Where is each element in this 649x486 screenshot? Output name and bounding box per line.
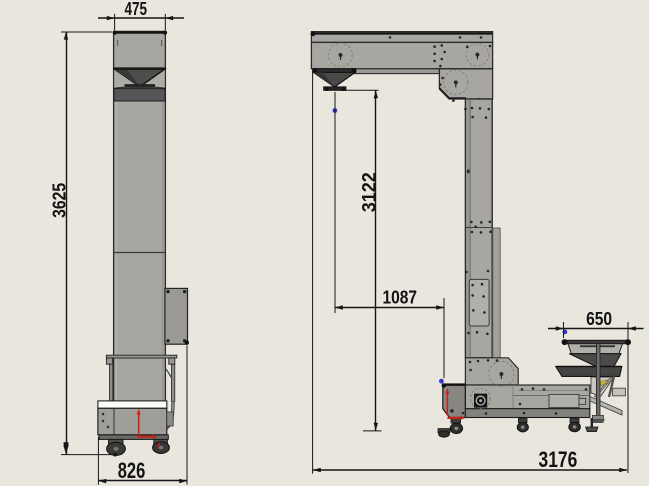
svg-text:826: 826: [118, 458, 146, 483]
svg-text:3176: 3176: [539, 447, 578, 472]
svg-text:650: 650: [586, 308, 612, 329]
svg-text:3122: 3122: [360, 172, 381, 212]
svg-text:475: 475: [125, 0, 148, 19]
svg-text:1087: 1087: [383, 288, 418, 308]
